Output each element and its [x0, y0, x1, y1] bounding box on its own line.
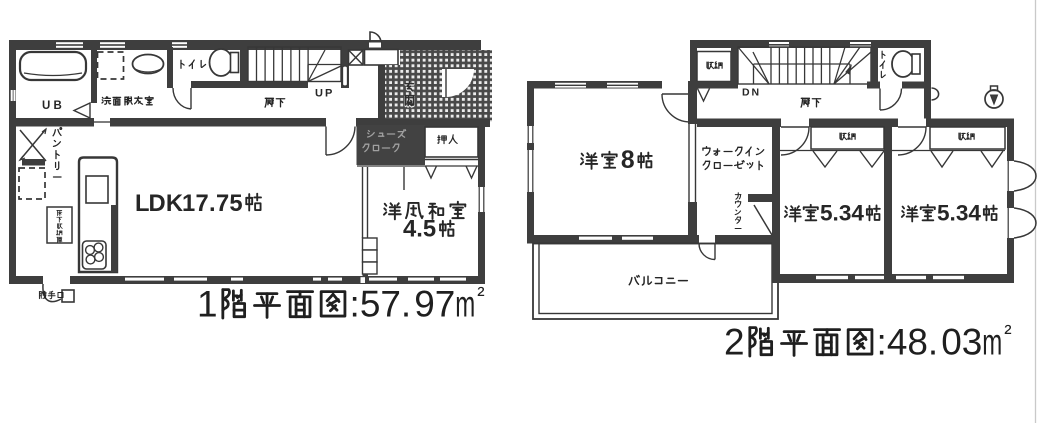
svg-text:2: 2: [724, 322, 745, 363]
svg-text:m: m: [982, 322, 1002, 363]
svg-text:P: P: [325, 88, 332, 100]
svg-text:0: 0: [941, 322, 962, 363]
svg-text::: :: [877, 322, 887, 363]
svg-text:5: 5: [820, 201, 833, 226]
svg-text:5: 5: [360, 284, 381, 325]
svg-text:7: 7: [435, 284, 456, 325]
svg-text:m: m: [455, 284, 475, 325]
svg-text:U: U: [42, 100, 50, 112]
svg-text:8: 8: [907, 322, 928, 363]
svg-text:4: 4: [887, 322, 908, 363]
svg-text:4: 4: [968, 201, 981, 226]
svg-text:3: 3: [956, 201, 969, 226]
svg-text:D: D: [148, 191, 165, 217]
svg-text:U: U: [315, 88, 323, 100]
svg-text:5: 5: [423, 216, 436, 243]
svg-text:1: 1: [182, 191, 195, 217]
svg-text:L: L: [135, 191, 150, 217]
svg-text:7: 7: [216, 191, 229, 217]
svg-text:²: ²: [1004, 320, 1011, 345]
svg-text:.: .: [209, 191, 216, 217]
svg-text:7: 7: [196, 191, 209, 217]
svg-text:8: 8: [621, 147, 635, 174]
svg-text:9: 9: [414, 284, 435, 325]
svg-text:3: 3: [839, 201, 852, 226]
svg-text:7: 7: [380, 284, 401, 325]
svg-text:N: N: [752, 87, 760, 99]
svg-text:B: B: [54, 100, 62, 112]
svg-text:D: D: [742, 87, 750, 99]
svg-text:²: ²: [477, 282, 484, 307]
svg-text:1: 1: [197, 284, 218, 325]
svg-text:5: 5: [229, 191, 242, 217]
svg-text:4: 4: [851, 201, 864, 226]
svg-text::: :: [350, 284, 360, 325]
svg-text:.: .: [401, 284, 411, 325]
svg-text:K: K: [166, 191, 183, 217]
svg-text:4: 4: [403, 216, 417, 243]
svg-text:.: .: [928, 322, 938, 363]
svg-text:3: 3: [962, 322, 983, 363]
svg-text:5: 5: [937, 201, 950, 226]
